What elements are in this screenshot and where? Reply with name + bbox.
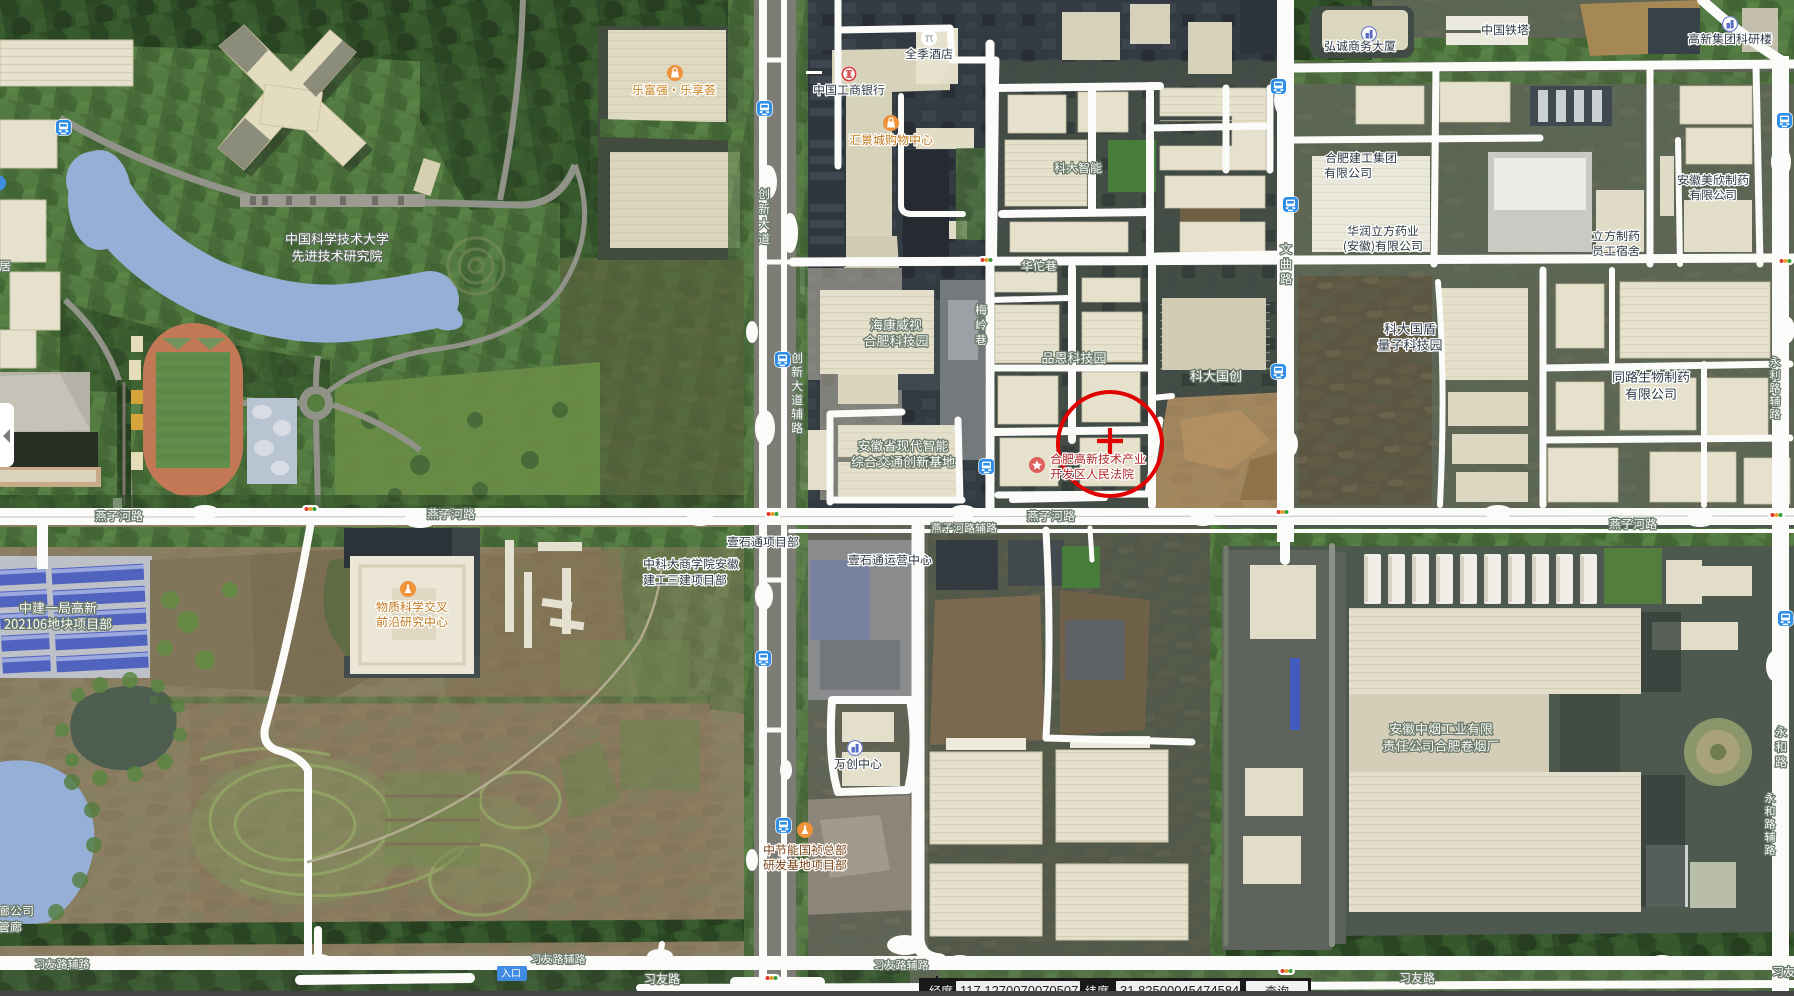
svg-text:117.1270070070507: 117.1270070070507 — [960, 983, 1078, 991]
svg-text:31.82500045474584: 31.82500045474584 — [1120, 983, 1239, 991]
